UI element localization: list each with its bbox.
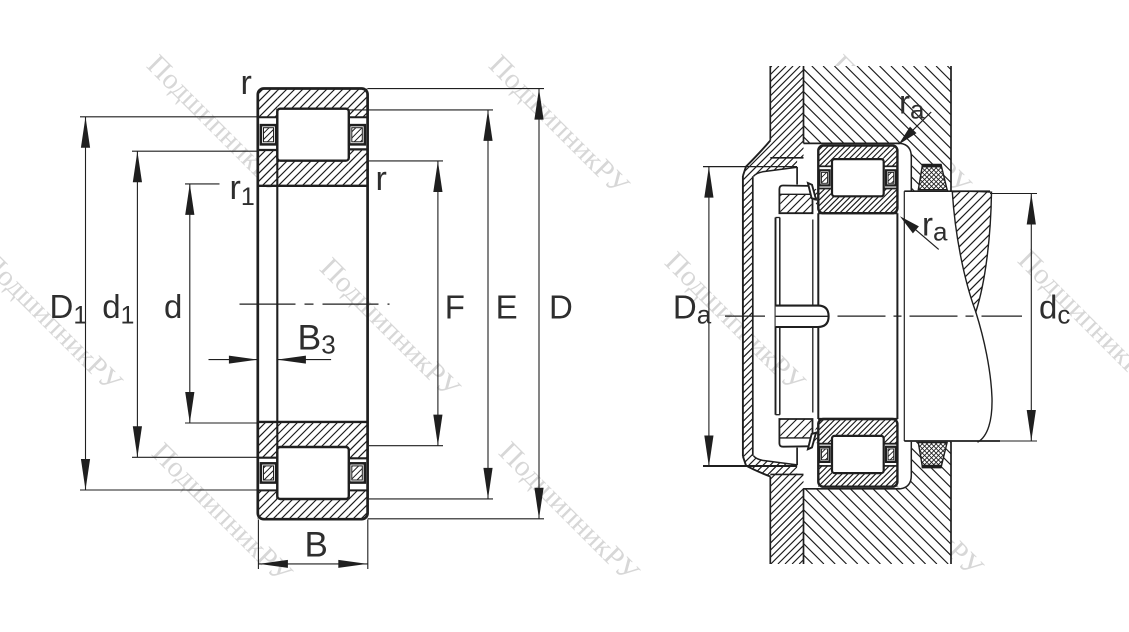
svg-text:D: D xyxy=(549,288,573,325)
svg-text:E: E xyxy=(496,288,518,325)
svg-text:d: d xyxy=(164,288,182,325)
svg-text:B: B xyxy=(305,526,328,565)
svg-text:r: r xyxy=(241,64,252,102)
svg-text:F: F xyxy=(445,288,465,325)
svg-text:r: r xyxy=(376,160,387,198)
